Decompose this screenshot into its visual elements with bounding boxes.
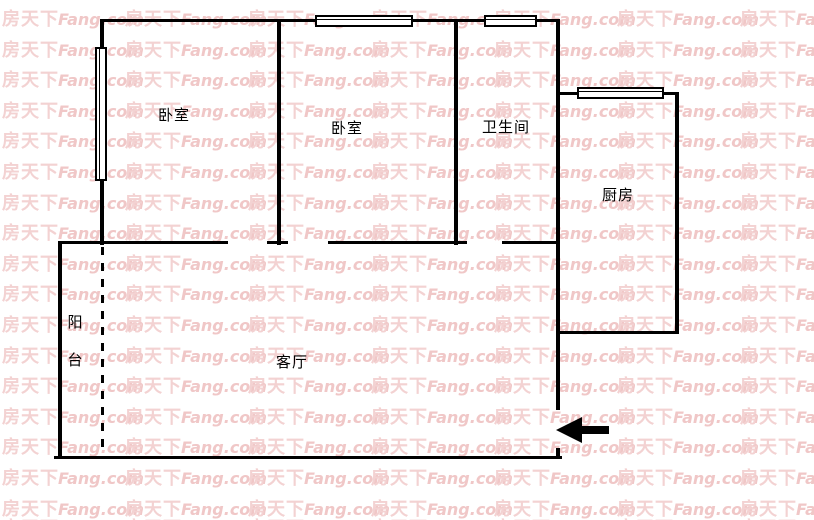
bedroom-left-label: 卧室 (158, 104, 190, 125)
wall-livingroom-top-segment-1 (58, 241, 228, 244)
floorplan: 卧室 卧室 卫生间 厨房 客厅 阳台 (0, 0, 814, 520)
bathroom-label: 卫生间 (482, 116, 530, 137)
wall-right-outer (556, 19, 560, 410)
entrance-arrow-icon (556, 415, 610, 445)
window-bedroom-middle (315, 15, 413, 27)
window-pane-line (579, 91, 662, 92)
arrow-head (556, 417, 582, 443)
floorplan-image: 房天下Fang.com房天下Fang.com房天下Fang.com房天下Fang… (0, 0, 814, 520)
wall-bottom-outer (54, 456, 562, 459)
window-kitchen (577, 87, 664, 99)
window-pane-line (317, 19, 411, 20)
wall-livingroom-top-segment-3 (328, 241, 467, 244)
wall-bedroom-divider (277, 19, 281, 245)
window-bedroom-left (95, 47, 107, 181)
wall-bedroom-bathroom-divider (454, 19, 458, 245)
arrow-shaft (580, 426, 609, 434)
wall-kitchen-bottom (558, 331, 679, 334)
wall-kitchen-right (675, 92, 679, 334)
balcony-label: 阳台 (66, 303, 84, 379)
bedroom-middle-label: 卧室 (331, 117, 363, 138)
balcony-divider-dashed-line (101, 247, 104, 453)
wall-livingroom-top-segment-4 (502, 241, 559, 244)
window-pane-line (99, 49, 100, 179)
wall-balcony-left-outer (58, 241, 62, 459)
living-room-label: 客厅 (276, 351, 308, 372)
kitchen-label: 厨房 (602, 184, 634, 205)
window-pane-line (486, 19, 535, 20)
window-bathroom (484, 15, 537, 27)
wall-livingroom-top-segment-2 (267, 241, 288, 244)
